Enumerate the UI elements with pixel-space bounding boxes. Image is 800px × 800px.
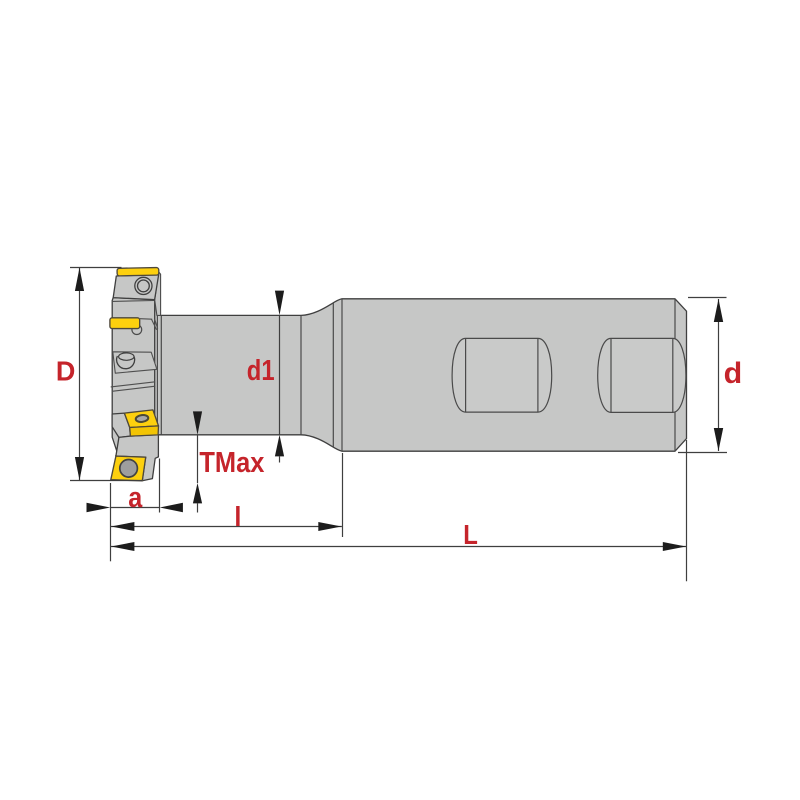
svg-text:l: l xyxy=(234,501,241,532)
svg-text:TMax: TMax xyxy=(199,447,264,479)
svg-text:a: a xyxy=(128,482,143,514)
svg-text:d1: d1 xyxy=(247,355,275,387)
svg-text:d: d xyxy=(724,357,743,390)
svg-text:D: D xyxy=(56,355,76,386)
svg-text:L: L xyxy=(463,519,478,550)
